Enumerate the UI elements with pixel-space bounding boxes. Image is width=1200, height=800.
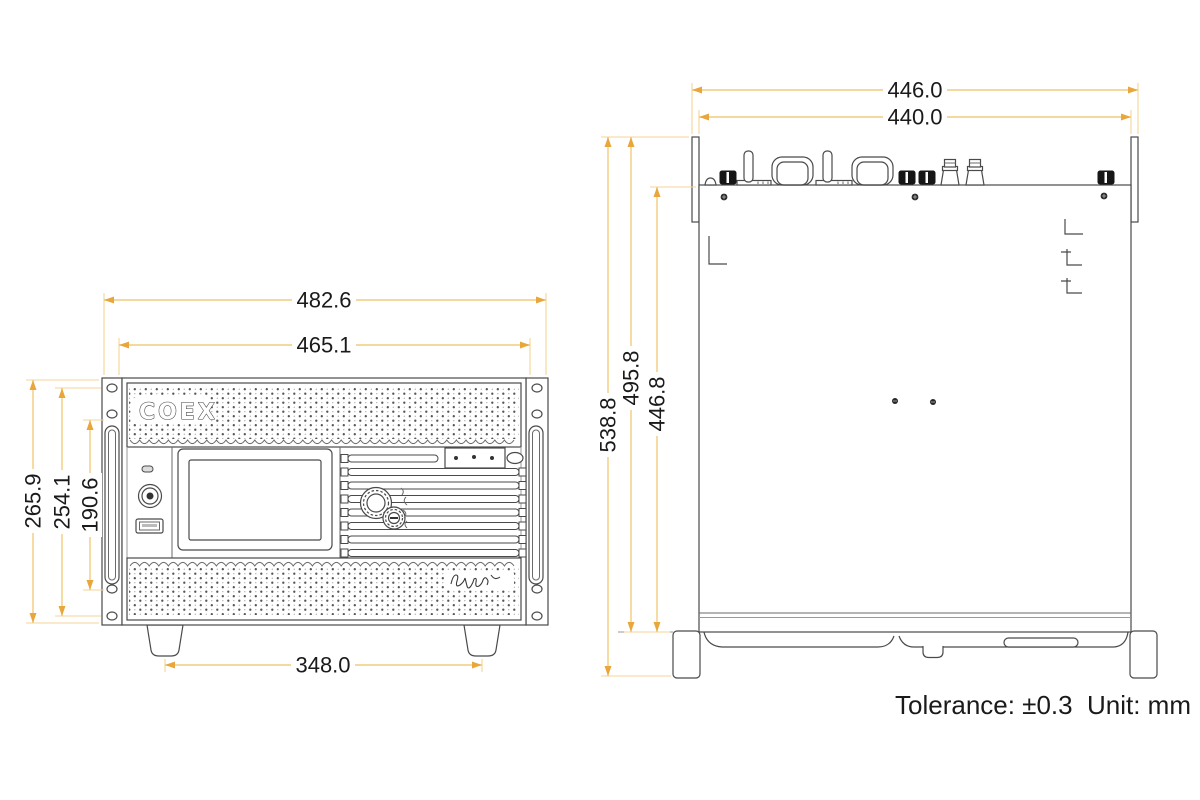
rear-connectors bbox=[705, 151, 1114, 185]
dim-label: 538.8 bbox=[596, 397, 621, 452]
dim-label: 254.1 bbox=[50, 474, 75, 529]
rear-knob-1 bbox=[720, 171, 736, 184]
usb-port bbox=[136, 519, 163, 533]
rear-rail-left bbox=[692, 137, 699, 222]
touchscreen bbox=[178, 449, 332, 550]
foot-right bbox=[464, 625, 500, 656]
script-logo bbox=[444, 571, 514, 590]
dim-label: 440.0 bbox=[887, 105, 942, 130]
rear-plate-1 bbox=[737, 181, 771, 186]
bezel-tab bbox=[923, 646, 943, 658]
rear-bump bbox=[705, 178, 716, 185]
foot-left bbox=[147, 625, 183, 656]
dim-label: 482.6 bbox=[296, 288, 351, 313]
dim-front-feet-spacing: 348.0 bbox=[165, 652, 482, 678]
vent-slat bbox=[341, 455, 348, 463]
tolerance-note: Tolerance: ±0.3 bbox=[895, 690, 1073, 720]
dim-label: 495.8 bbox=[619, 350, 644, 405]
dim-label: 348.0 bbox=[295, 653, 350, 678]
top-vent-grille: COEX bbox=[127, 383, 521, 447]
dim-top-body-width: 440.0 bbox=[699, 104, 1131, 134]
rear-handle-1 bbox=[772, 157, 813, 185]
unit-note: Unit: mm bbox=[1087, 690, 1191, 720]
antenna-2 bbox=[823, 151, 832, 182]
dim-front-overall-width: 482.6 bbox=[104, 287, 546, 375]
antenna-1 bbox=[744, 151, 753, 182]
dim-label: 265.9 bbox=[21, 473, 46, 528]
rear-rail-right bbox=[1131, 137, 1138, 222]
front-rack-ear-right bbox=[526, 378, 548, 625]
notes: Tolerance: ±0.3 Unit: mm bbox=[895, 690, 1191, 720]
bnc-connector-1 bbox=[941, 160, 959, 186]
rear-knob-3 bbox=[919, 171, 935, 184]
front-rack-ear-left bbox=[102, 378, 122, 625]
front-view: COEX bbox=[102, 378, 548, 656]
dim-label: 465.1 bbox=[296, 333, 351, 358]
indicator-panel bbox=[445, 448, 505, 468]
status-led bbox=[142, 466, 153, 472]
key-connector bbox=[139, 485, 162, 508]
secondary-knob bbox=[383, 507, 405, 529]
front-ear-right bbox=[1130, 631, 1157, 678]
rear-handle-2 bbox=[852, 157, 893, 185]
rear-plate-2 bbox=[816, 181, 852, 186]
bnc-connector-2 bbox=[966, 160, 984, 186]
dim-front-handle-span: 190.6 bbox=[78, 420, 105, 590]
technical-drawing-page: COEX bbox=[0, 0, 1200, 800]
dim-front-panel-width: 465.1 bbox=[119, 332, 530, 375]
rear-knob-4 bbox=[1098, 171, 1114, 184]
latch-slot bbox=[507, 453, 523, 464]
brand-logo: COEX bbox=[133, 397, 218, 425]
dimension-drawing: COEX bbox=[0, 0, 1200, 800]
bezel-recess bbox=[1004, 638, 1078, 647]
ear-handle bbox=[105, 426, 119, 584]
ear-handle bbox=[529, 426, 543, 584]
top-view bbox=[618, 137, 1157, 678]
vent-slat bbox=[348, 455, 438, 462]
touchscreen-display bbox=[189, 460, 321, 540]
dim-label: 446.8 bbox=[645, 376, 670, 431]
rear-knob-2 bbox=[899, 171, 915, 184]
front-ear-left bbox=[673, 631, 700, 678]
brand-logo-text: COEX bbox=[139, 400, 218, 425]
dim-label: 190.6 bbox=[78, 477, 103, 532]
dim-label: 446.0 bbox=[887, 78, 942, 103]
bottom-vent-grille bbox=[127, 558, 521, 620]
dim-top-body-depth: 446.8 bbox=[645, 187, 697, 632]
